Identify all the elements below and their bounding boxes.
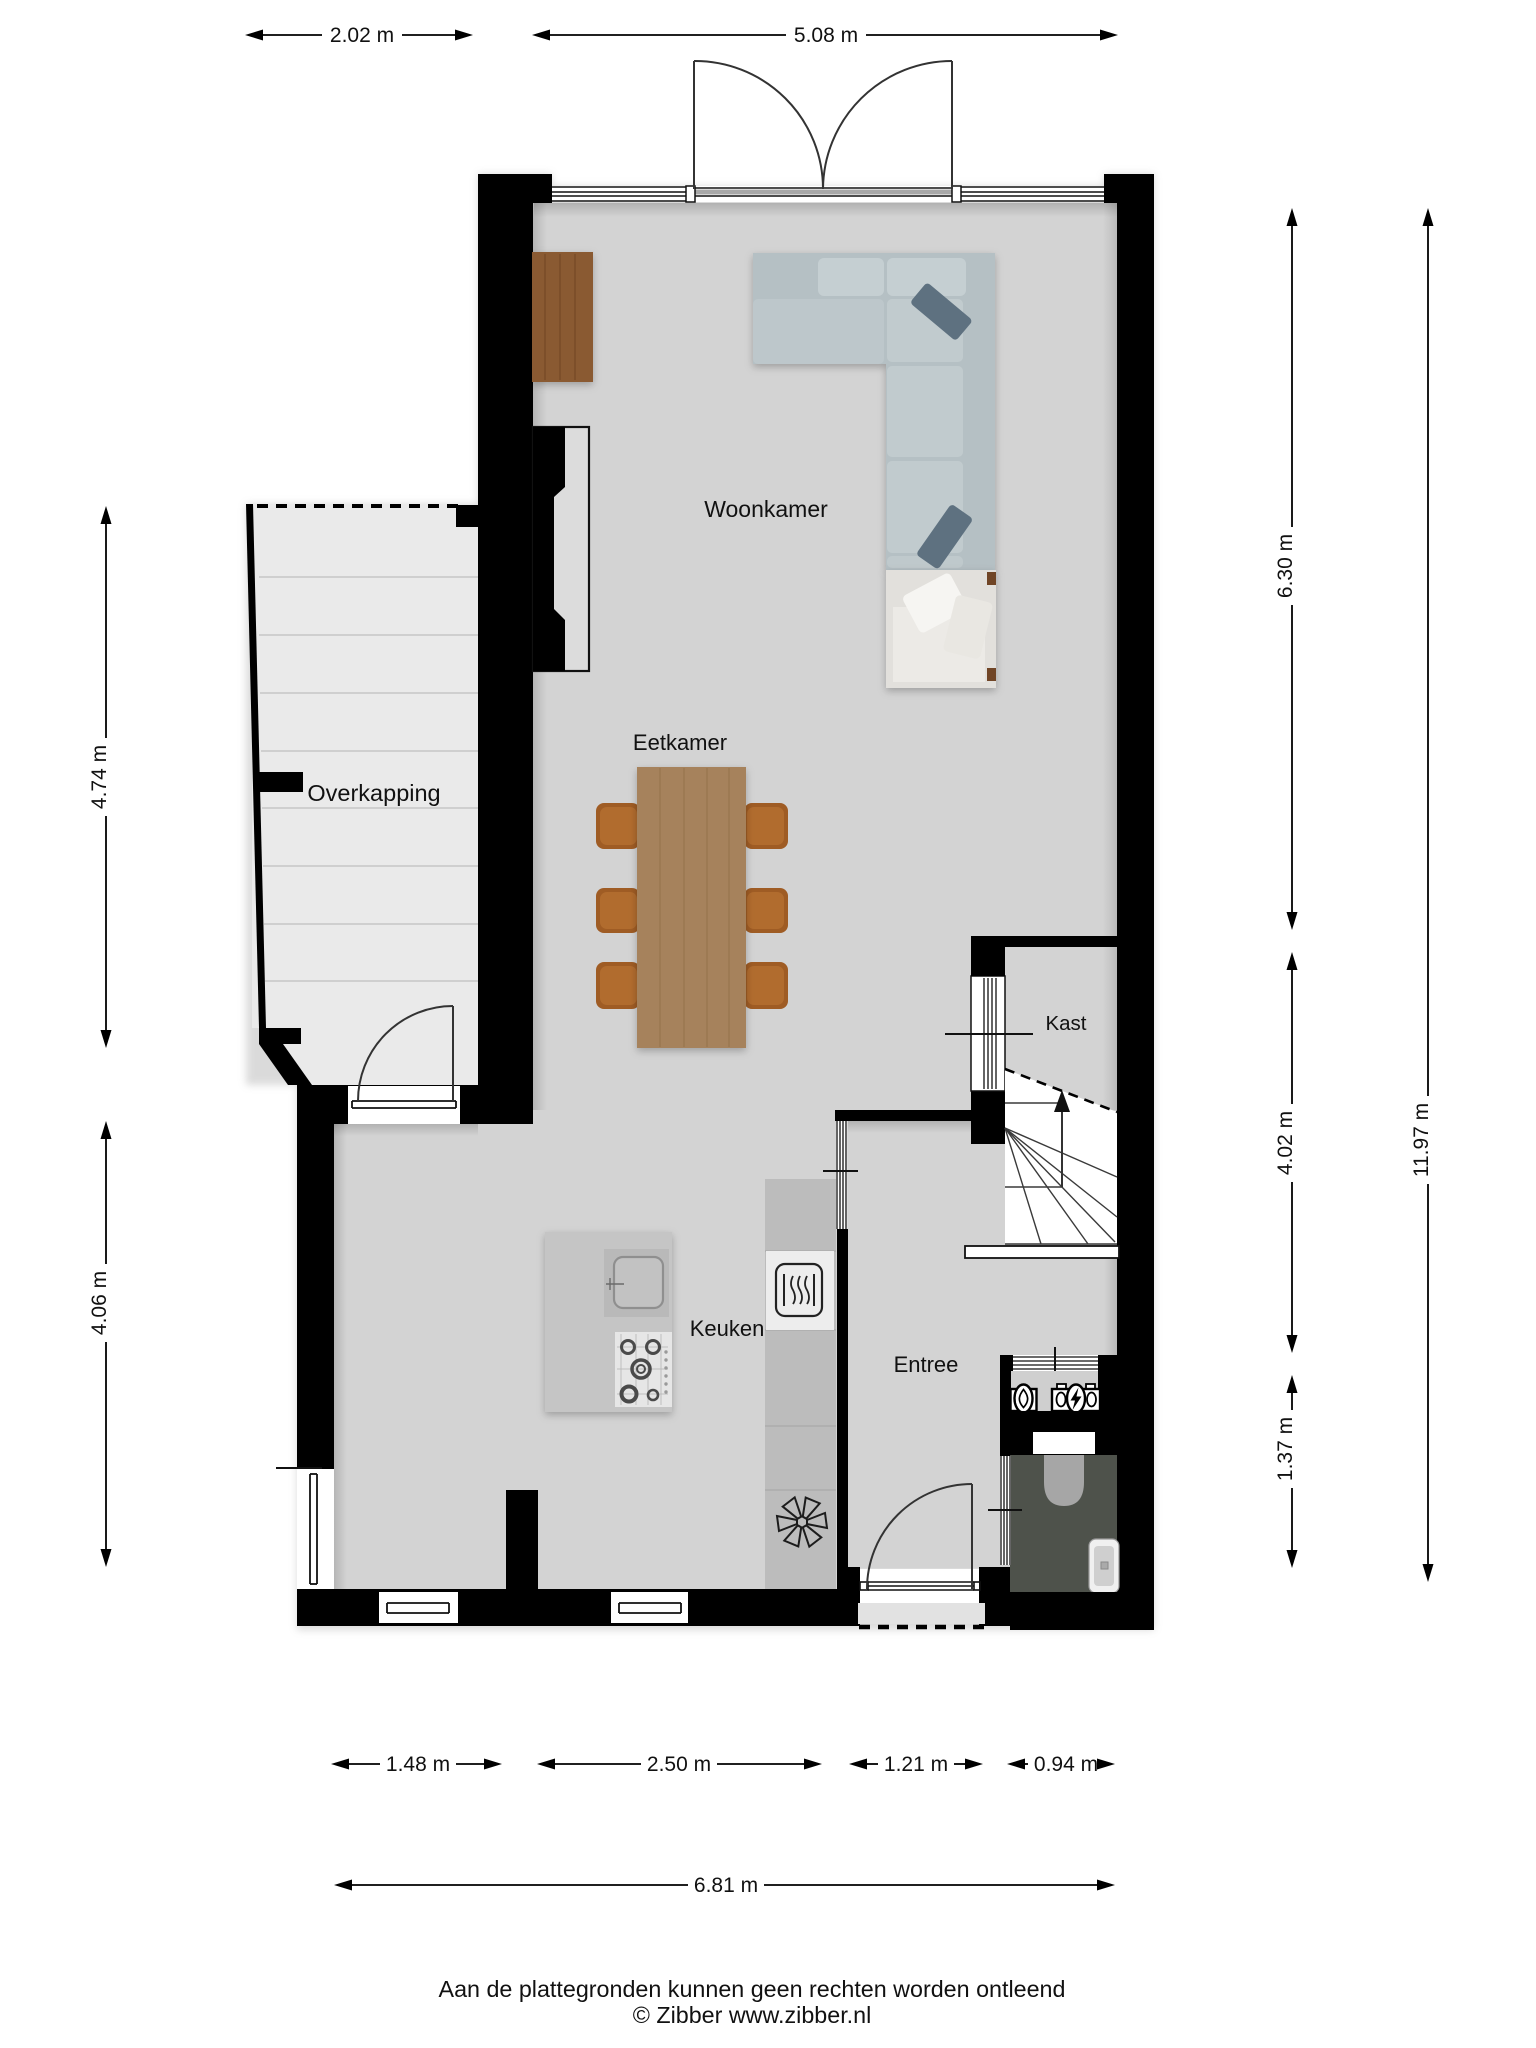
- svg-text:6.81 m: 6.81 m: [694, 1874, 758, 1897]
- svg-text:2.50 m: 2.50 m: [647, 1753, 711, 1776]
- svg-text:Overkapping: Overkapping: [307, 780, 440, 806]
- svg-text:2.02 m: 2.02 m: [330, 24, 394, 47]
- svg-text:1.37 m: 1.37 m: [1274, 1417, 1297, 1481]
- svg-text:11.97 m: 11.97 m: [1410, 1103, 1433, 1177]
- svg-text:Aan de plattegronden kunnen ge: Aan de plattegronden kunnen geen rechten…: [439, 1976, 1066, 2002]
- svg-text:1.48 m: 1.48 m: [386, 1753, 450, 1776]
- svg-text:4.06 m: 4.06 m: [88, 1271, 111, 1335]
- svg-text:Entree: Entree: [894, 1352, 959, 1377]
- svg-text:5.08 m: 5.08 m: [794, 24, 858, 47]
- svg-text:Woonkamer: Woonkamer: [704, 496, 828, 522]
- svg-text:4.02 m: 4.02 m: [1274, 1111, 1297, 1175]
- svg-text:1.21 m: 1.21 m: [884, 1753, 948, 1776]
- svg-text:6.30 m: 6.30 m: [1274, 534, 1297, 598]
- svg-text:4.74 m: 4.74 m: [88, 745, 111, 809]
- svg-text:© Zibber www.zibber.nl: © Zibber www.zibber.nl: [633, 2002, 872, 2028]
- svg-text:Eetkamer: Eetkamer: [633, 730, 727, 755]
- svg-text:0.94 m: 0.94 m: [1034, 1753, 1098, 1776]
- svg-text:Kast: Kast: [1045, 1012, 1086, 1035]
- svg-text:Keuken: Keuken: [690, 1316, 765, 1341]
